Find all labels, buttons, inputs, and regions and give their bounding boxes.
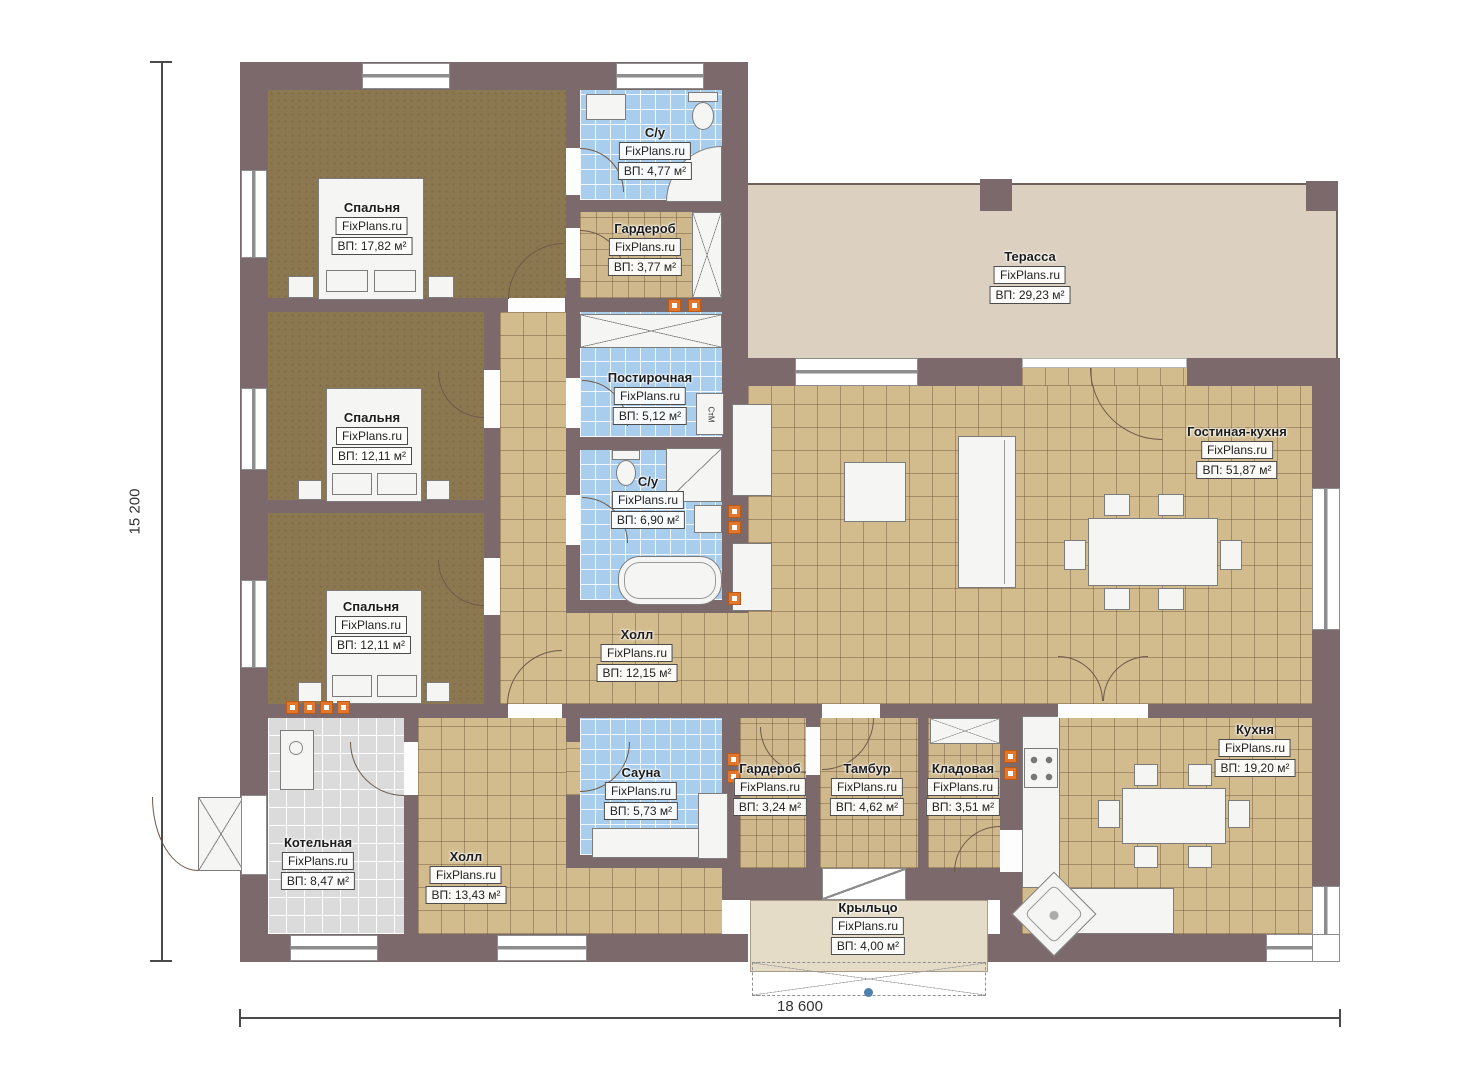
dimension-tick [239,1009,241,1027]
room-area: ВП: 4,00 м² [831,937,905,955]
watermark: FixPlans.ru [336,427,408,445]
dimension-tick [150,61,172,63]
room-area: ВП: 13,43 м² [426,886,507,904]
room-name: Гардероб [739,762,800,775]
dining-table [1088,518,1218,586]
room-label-wardrobe1: Гардероб FixPlans.ru ВП: 3,77 м² [608,222,682,276]
room-area: ВП: 4,77 м² [618,162,692,180]
door-opening [566,378,580,428]
window [795,358,918,386]
watermark: FixPlans.ru [612,491,684,509]
closet [580,314,722,348]
window [362,63,450,89]
room-name: Постирочная [608,371,692,384]
terrace-door-threshold [1022,358,1187,368]
room-label-vestibule: Тамбур FixPlans.ru ВП: 4,62 м² [830,762,904,816]
dimension-line-horizontal [240,1017,1340,1019]
floor-hall2-door-patch [566,742,580,795]
room-name: Сауна [621,766,660,779]
wall [722,868,822,900]
window [241,580,267,668]
dimension-tick [1339,1009,1341,1027]
door-swing-arc [152,797,198,871]
window [497,935,587,961]
door-opening [484,370,500,428]
watermark: FixPlans.ru [614,387,686,405]
dimension-label-height: 15 200 [127,482,144,542]
room-label-hall2: Холл FixPlans.ru ВП: 13,43 м² [426,850,507,904]
closet [692,212,722,298]
room-area: ВП: 12,11 м² [331,636,411,654]
utility-marker [286,701,299,714]
room-area: ВП: 3,24 м² [733,798,807,816]
watermark: FixPlans.ru [282,852,354,870]
room-area: ВП: 12,15 м² [597,664,678,682]
room-name: Спальня [344,201,400,214]
room-area: ВП: 8,47 м² [281,872,355,890]
room-label-bedroom2: Спальня FixPlans.ru ВП: 12,11 м² [332,411,412,465]
room-label-storage: Кладовая FixPlans.ru ВП: 3,51 м² [926,762,1000,816]
chair [1134,764,1158,786]
window [241,388,267,470]
watermark: FixPlans.ru [734,778,806,796]
watermark: FixPlans.ru [619,142,691,160]
wall [484,312,500,370]
room-name: Терасса [1004,250,1056,263]
pillow [377,473,417,495]
window [1312,488,1340,630]
chair [1104,588,1130,610]
watermark: FixPlans.ru [601,644,673,662]
wall [240,704,508,718]
wall [484,615,500,710]
floor-hall1 [500,312,566,704]
room-label-living: Гостиная-кухня FixPlans.ru ВП: 51,87 м² [1187,425,1287,479]
nightstand [426,480,450,500]
room-name: Котельная [284,836,352,849]
wall [806,775,820,868]
corner-window [1312,934,1340,962]
corner-window [1312,886,1340,936]
sink [586,94,626,120]
nightstand [298,682,322,702]
door-opening [508,704,562,718]
room-name: С/у [645,126,665,139]
utility-marker [1004,750,1017,763]
boiler [280,730,314,790]
room-name: Холл [621,628,654,641]
door-opening [1058,704,1148,718]
watermark: FixPlans.ru [927,778,999,796]
watermark: FixPlans.ru [430,866,502,884]
window [290,935,378,961]
watermark: FixPlans.ru [336,217,408,235]
window [241,170,267,258]
sink [694,505,722,533]
wall [404,718,418,742]
room-area: ВП: 3,77 м² [608,258,682,276]
chair [1064,540,1086,570]
room-label-bedroom1: Спальня FixPlans.ru ВП: 17,82 м² [332,201,413,255]
chair [1228,800,1250,828]
wall [484,428,500,558]
wall [1187,358,1317,386]
wall [806,718,820,727]
room-name: Кухня [1236,723,1274,736]
door-opening [822,704,880,718]
window [616,63,704,89]
wall [268,298,508,312]
room-label-sauna: Сауна FixPlans.ru ВП: 5,73 м² [604,766,678,820]
room-area: ВП: 4,62 м² [830,798,904,816]
door-opening [404,742,418,795]
room-label-ensuite: С/у FixPlans.ru ВП: 4,77 м² [618,126,692,180]
utility-marker [688,299,701,312]
chair [1158,588,1184,610]
dimension-tick [150,960,172,962]
watermark: FixPlans.ru [994,266,1066,284]
chair [1188,764,1212,786]
room-label-bedroom3: Спальня FixPlans.ru ВП: 12,11 м² [331,600,411,654]
washing-machine: СтМ [696,393,724,435]
watermark: FixPlans.ru [609,238,681,256]
room-label-bathroom: С/у FixPlans.ru ВП: 6,90 м² [611,475,685,529]
terrace-pillar [980,179,1012,211]
room-name: Спальня [343,600,399,613]
pillow [326,270,368,292]
wall [566,718,580,742]
utility-marker [303,701,316,714]
pillow [332,675,372,697]
door-opening [806,727,820,775]
watermark: FixPlans.ru [832,917,904,935]
room-name: Кладовая [932,762,994,775]
pillow [374,270,416,292]
room-label-boiler: Котельная FixPlans.ru ВП: 8,47 м² [281,836,355,890]
utility-marker [668,299,681,312]
door-opening [484,558,500,615]
entrance-steps [198,797,244,871]
room-name: Гостиная-кухня [1187,425,1287,438]
room-area: ВП: 19,20 м² [1215,759,1296,777]
door-opening [566,228,580,278]
wall [1000,868,1022,934]
utility-marker [728,592,741,605]
room-area: ВП: 6,90 м² [611,511,685,529]
washer-label: СтМ [707,406,716,422]
terrace-pillar [1306,181,1338,211]
room-area: ВП: 3,51 м² [926,798,1000,816]
room-label-porch: Крыльцо FixPlans.ru ВП: 4,00 м² [831,901,905,955]
storage-shelf [930,718,1000,744]
coffee-table [844,462,906,522]
room-area: ВП: 5,73 м² [604,802,678,820]
watermark: FixPlans.ru [605,782,677,800]
wall [404,795,418,934]
dimension-label-width: 18 600 [760,998,840,1015]
room-name: Тамбур [843,762,890,775]
utility-marker [1004,767,1017,780]
nightstand [426,682,450,702]
wall [1312,358,1340,962]
chair [1188,846,1212,868]
room-area: ВП: 51,87 м² [1197,461,1278,479]
watermark: FixPlans.ru [831,778,903,796]
room-name: С/у [638,475,658,488]
chair [1158,494,1184,516]
room-label-kitchen: Кухня FixPlans.ru ВП: 19,20 м² [1215,723,1296,777]
chair [1098,800,1120,828]
floor-plan: СтМ [0,0,1474,1080]
wall [1148,704,1317,718]
room-label-terrace: Терасса FixPlans.ru ВП: 29,23 м² [990,250,1071,304]
kitchen-table [1122,788,1226,844]
tv-cabinet [732,404,772,496]
room-label-hall1: Холл FixPlans.ru ВП: 12,15 м² [597,628,678,682]
wall [566,312,580,378]
utility-marker [728,505,741,518]
room-area: ВП: 12,11 м² [332,447,412,465]
room-name: Спальня [344,411,400,424]
pillow [332,473,372,495]
nightstand [288,276,314,298]
watermark: FixPlans.ru [1201,441,1273,459]
room-name: Гардероб [614,222,675,235]
door-opening [566,495,580,545]
wall [748,358,795,386]
room-area: ВП: 29,23 м² [990,286,1071,304]
nightstand [298,480,322,500]
room-label-wardrobe2: Гардероб FixPlans.ru ВП: 3,24 м² [733,762,807,816]
side-entrance-door [241,795,267,875]
wall [722,90,748,613]
toilet [688,92,718,102]
bathtub [618,556,722,605]
door-opening [1000,830,1022,872]
toilet-bowl [692,102,714,130]
room-area: ВП: 17,82 м² [332,237,413,255]
bathtub-inner [624,562,716,599]
nightstand [428,276,454,298]
chair [1220,540,1242,570]
utility-marker [728,521,741,534]
utility-marker [320,701,333,714]
toilet [612,450,640,460]
floor-hall2-lower [566,868,722,934]
kitchen-counter [1022,716,1060,888]
room-label-laundry: Постирочная FixPlans.ru ВП: 5,12 м² [608,371,692,425]
wall [562,704,822,718]
room-area: ВП: 5,12 м² [613,407,687,425]
room-name: Крыльцо [838,901,897,914]
room-name: Холл [450,850,483,863]
chair [1104,494,1130,516]
watermark: FixPlans.ru [1219,739,1291,757]
pillow [377,675,417,697]
wall [918,358,1022,386]
front-door [822,868,906,900]
chair [1134,846,1158,868]
door-opening [566,148,580,195]
sauna-bench [698,793,728,859]
sofa [958,436,1016,588]
door-opening [508,298,565,312]
utility-marker [337,701,350,714]
watermark: FixPlans.ru [335,616,407,634]
porch-axis-dot [864,988,873,997]
stove [1024,748,1058,788]
